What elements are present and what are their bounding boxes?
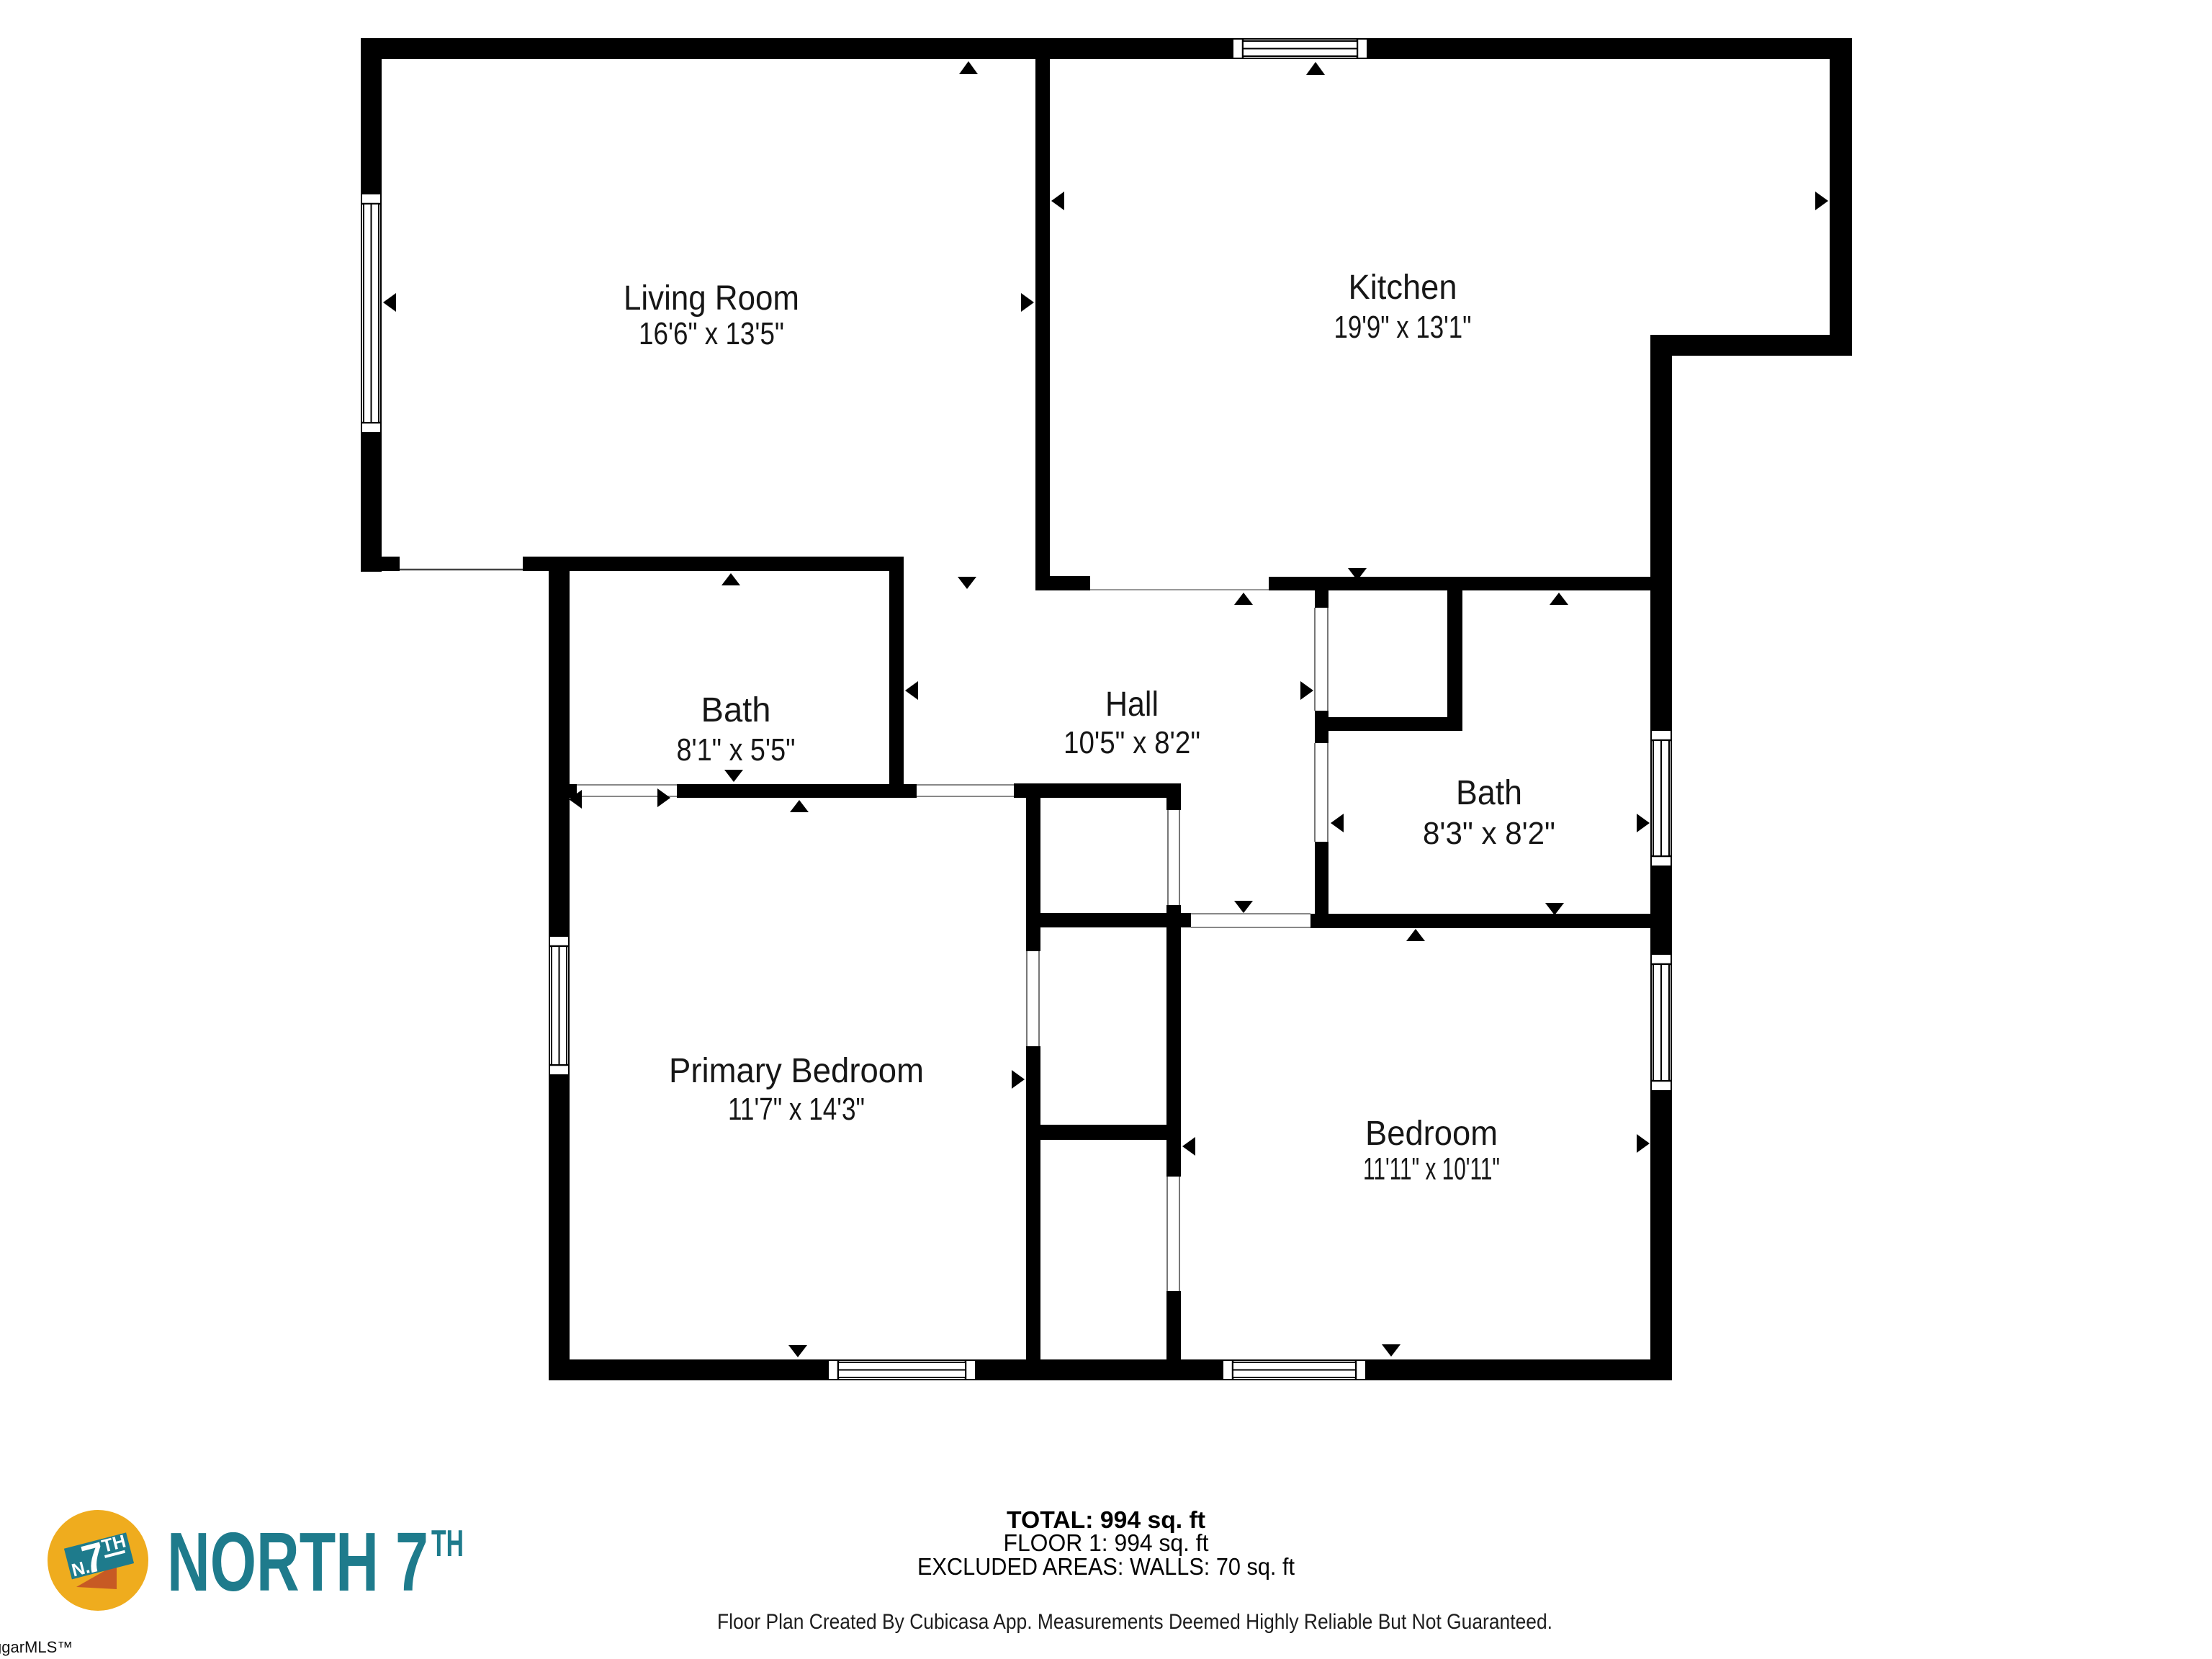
svg-text:FLOOR 1: 994 sq. ft: FLOOR 1: 994 sq. ft: [1004, 1529, 1209, 1556]
svg-text:8'1" x 5'5": 8'1" x 5'5": [677, 732, 796, 768]
svg-text:Primary Bedroom: Primary Bedroom: [669, 1052, 924, 1090]
svg-text:8'3" x 8'2": 8'3" x 8'2": [1423, 816, 1555, 851]
svg-text:10'5" x 8'2": 10'5" x 8'2": [1064, 725, 1200, 760]
svg-text:TH: TH: [431, 1523, 464, 1565]
svg-text:Kitchen: Kitchen: [1349, 269, 1457, 307]
svg-text:11'7" x 14'3": 11'7" x 14'3": [728, 1092, 865, 1127]
svg-text:19'9" x 13'1": 19'9" x 13'1": [1334, 310, 1472, 345]
svg-text:Living Room: Living Room: [624, 279, 799, 318]
svg-text:EXCLUDED AREAS: WALLS: 70 sq.: EXCLUDED AREAS: WALLS: 70 sq. ft: [917, 1553, 1295, 1580]
svg-text:Floor Plan Created By Cubicasa: Floor Plan Created By Cubicasa App. Meas…: [717, 1610, 1552, 1634]
svg-text:Bedroom: Bedroom: [1365, 1115, 1498, 1153]
svg-text:ggarMLS™: ggarMLS™: [0, 1638, 73, 1656]
svg-text:Hall: Hall: [1105, 685, 1159, 724]
svg-text:Bath: Bath: [701, 691, 771, 729]
svg-text:NORTH 7: NORTH 7: [167, 1515, 428, 1609]
svg-text:11'11" x 10'11": 11'11" x 10'11": [1363, 1151, 1500, 1187]
svg-text:Bath: Bath: [1456, 774, 1522, 812]
svg-text:16'6" x 13'5": 16'6" x 13'5": [639, 316, 784, 351]
